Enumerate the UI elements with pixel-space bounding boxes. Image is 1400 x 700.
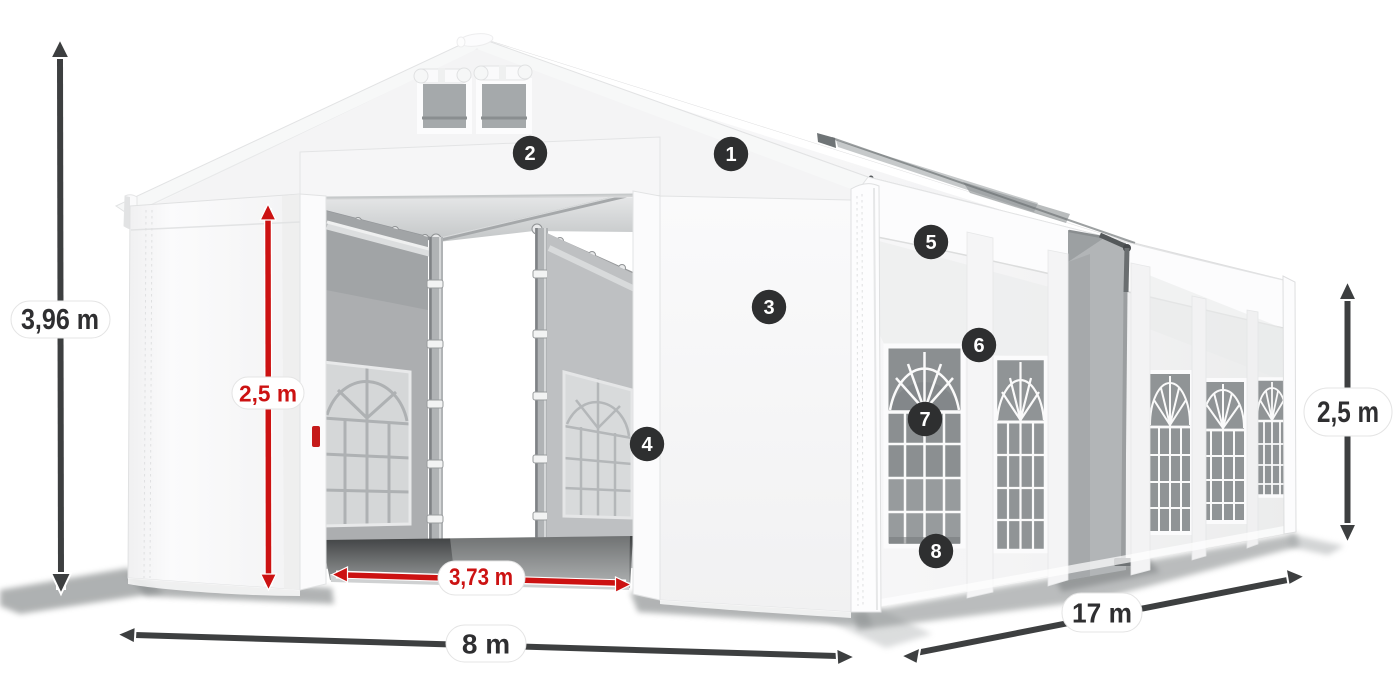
svg-text:5: 5 [925, 232, 936, 254]
svg-text:6: 6 [973, 335, 984, 357]
svg-text:4: 4 [641, 434, 653, 456]
svg-text:2,5 m: 2,5 m [239, 381, 297, 407]
svg-text:2,5 m: 2,5 m [1317, 396, 1379, 429]
svg-text:3,73 m: 3,73 m [449, 564, 513, 591]
svg-text:17 m: 17 m [1072, 598, 1132, 629]
svg-text:8: 8 [930, 541, 941, 563]
svg-text:1: 1 [725, 144, 736, 166]
svg-text:2: 2 [524, 143, 535, 165]
svg-text:3,96 m: 3,96 m [21, 304, 99, 336]
svg-text:3: 3 [763, 297, 774, 319]
svg-text:8 m: 8 m [462, 629, 510, 660]
svg-text:7: 7 [919, 409, 930, 431]
